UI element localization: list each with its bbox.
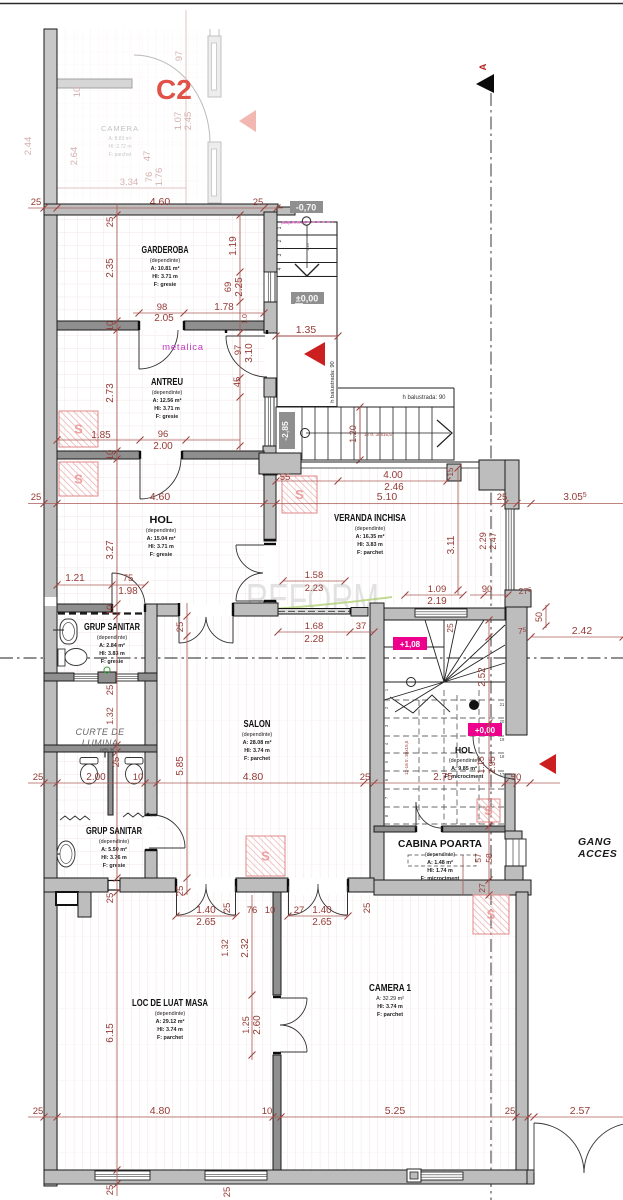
svg-text:4: 4 — [277, 267, 283, 270]
svg-text:2.25: 2.25 — [234, 277, 245, 297]
svg-text:(dependinte): (dependinte) — [355, 526, 385, 532]
svg-text:A: 12.56 m²: A: 12.56 m² — [153, 398, 182, 404]
svg-text:(dependinte): (dependinte) — [449, 758, 479, 764]
svg-text:2.05: 2.05 — [154, 313, 174, 324]
svg-text:2.00: 2.00 — [153, 441, 173, 452]
svg-text:4.80: 4.80 — [150, 1105, 171, 1117]
svg-text:(dependinte): (dependinte) — [155, 1011, 185, 1017]
svg-text:12-16 tr. 30x15,5: 12-16 tr. 30x15,5 — [404, 740, 409, 775]
svg-text:55: 55 — [280, 472, 291, 483]
svg-text:HI: 2.72 m: HI: 2.72 m — [108, 144, 131, 150]
svg-text:ANTREU: ANTREU — [151, 377, 183, 388]
svg-text:CAMERA: CAMERA — [101, 124, 139, 133]
svg-text:57: 57 — [473, 853, 483, 863]
svg-text:2.35: 2.35 — [105, 258, 116, 278]
svg-text:19: 19 — [500, 737, 505, 742]
svg-text:-0,70: -0,70 — [296, 203, 317, 213]
svg-text:97: 97 — [174, 51, 185, 62]
svg-text:CURTE DE: CURTE DE — [75, 727, 125, 737]
svg-text:25: 25 — [33, 772, 44, 783]
svg-text:S: S — [74, 472, 83, 487]
svg-text:10: 10 — [133, 772, 144, 783]
svg-text:5.85: 5.85 — [175, 756, 186, 776]
svg-text:S: S — [74, 422, 83, 437]
svg-text:2.28: 2.28 — [304, 634, 324, 645]
svg-text:A: 8.83 m²: A: 8.83 m² — [108, 136, 131, 142]
svg-text:S: S — [295, 487, 304, 502]
svg-text:(dependinte): (dependinte) — [99, 839, 129, 845]
svg-text:10: 10 — [72, 87, 83, 98]
svg-text:h balustrada: 90: h balustrada: 90 — [330, 361, 336, 403]
svg-text:25: 25 — [33, 1106, 44, 1117]
svg-text:F: gresie: F: gresie — [156, 414, 178, 420]
svg-text:50: 50 — [511, 772, 522, 783]
svg-text:CABINA POARTA: CABINA POARTA — [398, 839, 482, 850]
svg-text:1.40: 1.40 — [312, 905, 332, 916]
svg-text:HOL: HOL — [455, 745, 473, 755]
svg-text:3.34: 3.34 — [120, 177, 139, 188]
svg-text:1: 1 — [277, 226, 283, 229]
svg-text:27: 27 — [477, 883, 487, 893]
svg-text:HI: 3.74 m: HI: 3.74 m — [244, 748, 270, 754]
svg-text:2.47: 2.47 — [488, 532, 498, 550]
svg-text:25: 25 — [362, 903, 373, 914]
svg-text:25: 25 — [445, 623, 455, 633]
svg-text:A: 1.48 m²: A: 1.48 m² — [427, 860, 453, 866]
svg-text:+0,00: +0,00 — [475, 726, 496, 735]
svg-text:GARDEROBA: GARDEROBA — [142, 245, 189, 256]
svg-text:1.78: 1.78 — [214, 302, 234, 313]
svg-text:A: 2.84 m²: A: 2.84 m² — [99, 643, 125, 649]
svg-text:GRUP SANITAR: GRUP SANITAR — [84, 622, 141, 633]
svg-text:curte de: curte de — [100, 747, 115, 752]
svg-text:F: parchet: F: parchet — [244, 756, 270, 762]
svg-text:HOL: HOL — [150, 515, 173, 526]
svg-text:(dependinte): (dependinte) — [150, 258, 180, 264]
svg-text:(dependinte): (dependinte) — [242, 732, 272, 738]
svg-text:1.19: 1.19 — [228, 236, 239, 256]
svg-text:2.19: 2.19 — [427, 596, 447, 607]
svg-text:4.80: 4.80 — [243, 771, 264, 783]
svg-text:1.10: 1.10 — [306, 243, 310, 250]
svg-text:2.42: 2.42 — [572, 625, 593, 637]
svg-text:A: 29.12 m²: A: 29.12 m² — [156, 1019, 185, 1025]
svg-text:1.98: 1.98 — [118, 586, 138, 597]
svg-text:2.65: 2.65 — [312, 917, 332, 928]
svg-text:S: S — [261, 849, 270, 864]
svg-text:HI: 3.71 m: HI: 3.71 m — [152, 274, 178, 280]
svg-text:6.15: 6.15 — [105, 1023, 116, 1043]
svg-text:96: 96 — [158, 429, 169, 440]
svg-text:25: 25 — [31, 197, 42, 208]
svg-text:2.73: 2.73 — [105, 383, 116, 403]
svg-text:CAMERA 1: CAMERA 1 — [369, 983, 411, 994]
svg-text:1.15: 1.15 — [476, 756, 486, 774]
svg-text:37: 37 — [356, 621, 367, 632]
svg-text:HI: 3.83 m: HI: 3.83 m — [357, 542, 383, 548]
svg-text:25: 25 — [175, 886, 186, 897]
svg-text:+1,08: +1,08 — [400, 640, 421, 649]
svg-text:F: gresie: F: gresie — [103, 863, 125, 869]
svg-text:A: 28.08 m²: A: 28.08 m² — [243, 740, 272, 746]
svg-text:3.11: 3.11 — [446, 535, 457, 554]
svg-text:1.76: 1.76 — [154, 168, 165, 187]
svg-text:1.0: 1.0 — [242, 314, 249, 324]
svg-text:2.64: 2.64 — [69, 147, 80, 166]
svg-text:A: 9.85 m²: A: 9.85 m² — [451, 766, 477, 772]
svg-text:58: 58 — [484, 853, 494, 863]
svg-text:3.27: 3.27 — [105, 540, 116, 560]
svg-text:ACCES: ACCES — [577, 848, 617, 860]
svg-text:LOC DE LUAT MASA: LOC DE LUAT MASA — [132, 998, 208, 1009]
svg-text:50: 50 — [534, 612, 544, 622]
svg-text:25: 25 — [222, 1187, 233, 1198]
svg-text:17: 17 — [500, 772, 505, 777]
svg-text:45: 45 — [232, 377, 243, 388]
svg-text:1.25: 1.25 — [241, 1016, 251, 1034]
svg-text:10: 10 — [265, 905, 276, 916]
svg-text:2.75: 2.75 — [433, 772, 453, 783]
svg-text:27: 27 — [294, 905, 305, 916]
svg-text:5.25: 5.25 — [385, 1105, 406, 1117]
svg-text:25: 25 — [105, 893, 116, 904]
svg-text:metalica: metalica — [162, 342, 204, 353]
svg-text:1.32: 1.32 — [105, 707, 115, 725]
svg-text:C2: C2 — [156, 74, 192, 105]
svg-text:VERANDA INCHISA: VERANDA INCHISA — [334, 513, 406, 524]
svg-text:1.58: 1.58 — [305, 570, 324, 581]
svg-text:25: 25 — [31, 492, 42, 503]
svg-text:25: 25 — [105, 217, 116, 228]
svg-text:25: 25 — [222, 903, 233, 914]
svg-text:21: 21 — [500, 702, 505, 707]
svg-text:F: gresie: F: gresie — [101, 659, 123, 665]
svg-text:97: 97 — [233, 345, 244, 356]
svg-text:4.60: 4.60 — [150, 491, 171, 503]
svg-text:76: 76 — [247, 905, 258, 916]
svg-text:2.65: 2.65 — [196, 917, 216, 928]
svg-text:(dependinte): (dependinte) — [97, 635, 127, 641]
svg-text:4.60: 4.60 — [150, 196, 171, 208]
svg-text:F: parchet: F: parchet — [109, 152, 132, 158]
svg-text:1.21: 1.21 — [65, 573, 85, 584]
svg-text:25: 25 — [360, 772, 371, 783]
svg-text:90: 90 — [482, 584, 493, 595]
svg-text:2.00: 2.00 — [86, 772, 106, 783]
svg-text:1.40: 1.40 — [196, 905, 216, 916]
svg-text:1.35: 1.35 — [296, 324, 317, 336]
svg-text:A: 32.29 m²: A: 32.29 m² — [376, 996, 404, 1002]
svg-text:25: 25 — [253, 197, 264, 208]
svg-text:GANG: GANG — [578, 836, 612, 848]
svg-text:HI: 3.71 m: HI: 3.71 m — [154, 406, 180, 412]
svg-text:75: 75 — [123, 573, 134, 584]
svg-text:2.95: 2.95 — [487, 756, 497, 774]
svg-text:HI: 3.74 m: HI: 3.74 m — [157, 1027, 183, 1033]
svg-text:2.52: 2.52 — [477, 667, 488, 687]
svg-text:25: 25 — [111, 757, 122, 768]
svg-text:A: 16.35 m²: A: 16.35 m² — [356, 534, 385, 540]
svg-text:F: gresie: F: gresie — [150, 552, 172, 558]
svg-text:2.23: 2.23 — [305, 583, 324, 594]
svg-text:25: 25 — [497, 492, 508, 503]
svg-text:HI: 3.76 m: HI: 3.76 m — [101, 855, 127, 861]
svg-text:1.85: 1.85 — [91, 430, 111, 441]
svg-text:10: 10 — [105, 321, 116, 332]
svg-text:10: 10 — [262, 1106, 273, 1117]
svg-text:12 tr. 30x15,5: 12 tr. 30x15,5 — [364, 432, 392, 437]
svg-text:HI: 3.71 m: HI: 3.71 m — [148, 544, 174, 550]
svg-text:2.60: 2.60 — [252, 1015, 263, 1035]
svg-text:47: 47 — [142, 151, 153, 162]
svg-text:4.00: 4.00 — [383, 470, 403, 481]
svg-text:15: 15 — [446, 467, 455, 476]
svg-text:1.09: 1.09 — [428, 584, 447, 595]
svg-text:HI: 1.74 m: HI: 1.74 m — [427, 868, 453, 874]
svg-text:HI: 3.74 m: HI: 3.74 m — [377, 1004, 403, 1010]
svg-text:2.57: 2.57 — [570, 1105, 591, 1117]
svg-text:A: A — [478, 63, 489, 70]
svg-text:3: 3 — [277, 253, 283, 256]
svg-text:S: S — [487, 907, 496, 922]
svg-text:GRUP SANITAR: GRUP SANITAR — [86, 826, 143, 837]
svg-text:2: 2 — [277, 239, 283, 242]
svg-text:(dependinte): (dependinte) — [152, 390, 182, 396]
svg-text:(dependinte): (dependinte) — [146, 528, 176, 534]
svg-text:F: microciment: F: microciment — [421, 876, 460, 882]
svg-text:A: 10.81 m²: A: 10.81 m² — [151, 266, 180, 272]
svg-text:98: 98 — [157, 302, 168, 313]
svg-text:5.10: 5.10 — [377, 491, 398, 503]
svg-text:SALON: SALON — [244, 719, 271, 730]
svg-text:F: parchet: F: parchet — [157, 1035, 183, 1041]
svg-text:25: 25 — [105, 685, 116, 696]
svg-text:F: parchet: F: parchet — [357, 550, 383, 556]
svg-text:HI: 3.83 m: HI: 3.83 m — [99, 651, 125, 657]
svg-text:1.20: 1.20 — [348, 425, 358, 443]
svg-text:1.68: 1.68 — [305, 621, 324, 632]
svg-text:F: parchet: F: parchet — [377, 1012, 403, 1018]
svg-text:2.44: 2.44 — [23, 137, 34, 156]
svg-text:10: 10 — [105, 450, 116, 461]
svg-text:A: 5.50 m²: A: 5.50 m² — [101, 847, 127, 853]
svg-text:18: 18 — [500, 754, 505, 759]
svg-text:parapet h=0 cm: parapet h=0 cm — [281, 221, 306, 225]
svg-text:2.29: 2.29 — [478, 532, 488, 550]
svg-text:h balustrada: 90: h balustrada: 90 — [402, 395, 446, 401]
svg-text:±0,00: ±0,00 — [296, 294, 318, 304]
svg-text:25: 25 — [105, 1185, 116, 1196]
svg-text:69: 69 — [223, 282, 234, 293]
svg-text:A: 15.04 m²: A: 15.04 m² — [147, 536, 176, 542]
svg-text:2.45: 2.45 — [183, 112, 194, 131]
svg-text:25: 25 — [505, 1106, 516, 1117]
svg-text:25: 25 — [175, 622, 186, 633]
svg-text:3.10: 3.10 — [244, 343, 255, 363]
svg-text:10: 10 — [105, 605, 116, 616]
svg-text:1.32: 1.32 — [220, 939, 230, 957]
svg-text:F: gresie: F: gresie — [154, 282, 176, 288]
svg-text:-2,85: -2,85 — [280, 421, 290, 441]
svg-text:2.32: 2.32 — [240, 938, 251, 958]
